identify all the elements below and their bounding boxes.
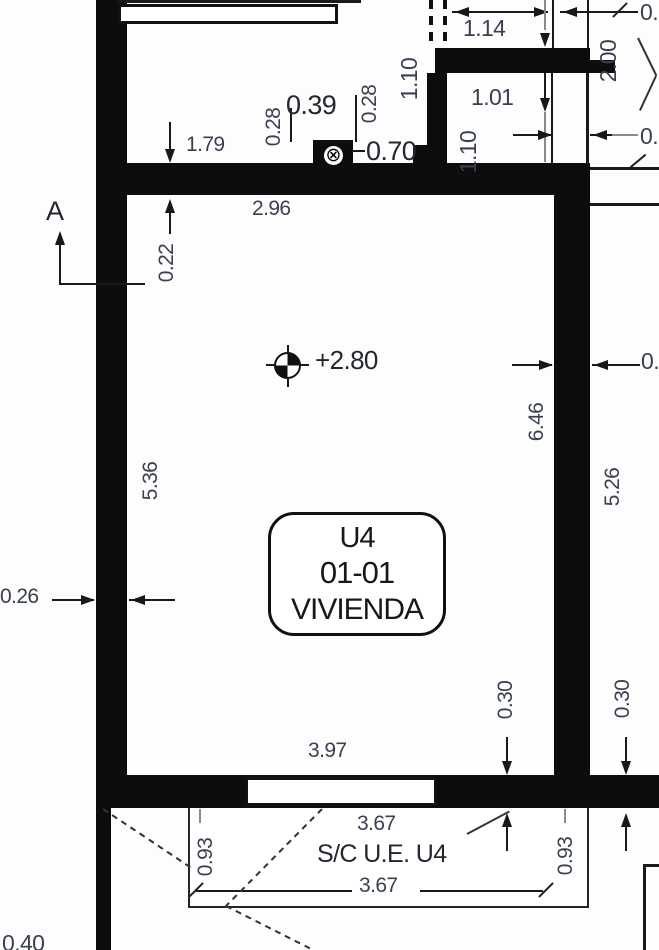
dim-arrow-right (539, 360, 556, 370)
wall-top-right (435, 48, 590, 73)
dim-6-46: 6.46 (526, 392, 550, 452)
section-cut-line (59, 283, 145, 285)
dim-cut-mid-right: 0. (640, 125, 658, 148)
dim-tick (506, 737, 508, 763)
dim-arrow-left (591, 360, 608, 370)
dim-tick (544, 73, 546, 99)
dim-arrow-left (128, 595, 145, 605)
dim-0-39: 0.39 (286, 92, 336, 119)
dim-1-10-b: 1.10 (457, 122, 481, 182)
dim-5-26: 5.26 (602, 457, 626, 517)
dim-arrow-right (81, 595, 98, 605)
dim-line (196, 890, 352, 892)
corridor-line-lower (590, 203, 659, 206)
dim-arrow-left (590, 130, 607, 140)
dim-tick (564, 809, 566, 823)
dim-3-97: 3.97 (308, 740, 346, 761)
dim-0-30-b: 0.30 (612, 669, 636, 729)
top-window-sill-line (118, 0, 361, 3)
adjacent-balcony-left-edge (643, 864, 646, 950)
dim-slash-tick (612, 2, 628, 18)
dim-0-28-a: 0.28 (263, 97, 287, 157)
wall-right (554, 163, 590, 776)
section-marker-label: A (46, 198, 63, 225)
dim-1-01: 1.01 (471, 86, 513, 109)
dim-3-67-top: 3.67 (357, 813, 395, 834)
dim-tick (169, 122, 171, 152)
dim-arrow-right (534, 7, 551, 17)
dim-leader-line (637, 38, 657, 77)
dim-cut-top-right: 0. (640, 1, 658, 24)
floor-plan-drawing: ⊗ A +2.80 U4 01-01 VIVIENDA (0, 0, 659, 950)
dim-0-22: 0.22 (156, 233, 180, 293)
door-opening-right-jamb (586, 73, 589, 164)
level-tick-left (266, 364, 274, 366)
dim-line (352, 150, 365, 152)
dim-0-30-a: 0.30 (495, 670, 519, 730)
level-tick-right (301, 364, 309, 366)
room-label-box: U4 01-01 VIVIENDA (268, 512, 446, 636)
dim-2-00: 2.00 (597, 31, 621, 91)
shaft-line-right-upper (587, 0, 589, 48)
dim-arrow-down (165, 149, 175, 166)
dim-leader-line (639, 76, 657, 111)
dim-extension-line (612, 134, 638, 136)
dim-arrow-left (560, 7, 577, 17)
dim-arrow-down (540, 33, 550, 50)
dim-line (420, 890, 543, 892)
level-value: +2.80 (315, 347, 378, 373)
dim-0-93-b: 0.93 (555, 826, 579, 886)
door-opening-left-jamb (551, 73, 553, 164)
dim-5-36: 5.36 (140, 451, 164, 511)
dim-tick (169, 208, 171, 234)
overhead-projection-dashed-line-1 (429, 0, 433, 46)
dim-3-67-bottom: 3.67 (359, 875, 397, 896)
room-use: VIVIENDA (291, 592, 423, 627)
dim-arrow-down (502, 761, 512, 778)
dim-1-79: 1.79 (186, 134, 224, 155)
dim-arrow-down (621, 761, 631, 778)
dim-0-70: 0.70 (366, 138, 416, 165)
dim-0-28-b: 0.28 (359, 74, 383, 134)
void-diagonal-line (102, 808, 190, 868)
dim-0-93-a: 0.93 (195, 827, 219, 887)
room-code: 01-01 (320, 555, 394, 592)
room-unit: U4 (339, 521, 374, 555)
wall-jog-pilaster (413, 145, 447, 167)
level-tick-bottom (287, 379, 289, 387)
dim-tick (506, 823, 508, 851)
dim-tick (625, 737, 627, 763)
column-axis-icon: ⊗ (324, 146, 343, 165)
dim-tick (625, 823, 627, 851)
dim-extension-line (544, 0, 546, 30)
dim-0-26: 0.26 (0, 586, 38, 607)
dim-1-14: 1.14 (463, 17, 505, 40)
dim-cut-wall-right: 0. (641, 350, 659, 373)
dim-1-10-a: 1.10 (398, 49, 422, 109)
window-bottom (245, 777, 437, 806)
dim-tick (199, 809, 201, 823)
wall-left-lower (96, 806, 111, 950)
corridor-line-upper (590, 167, 659, 170)
shaft-line-left-upper (552, 0, 554, 48)
level-marker-icon (274, 352, 301, 379)
level-tick-top (287, 345, 289, 353)
window-top (118, 4, 338, 24)
wall-left (96, 0, 127, 776)
dim-tick (355, 95, 357, 142)
dim-2-96: 2.96 (252, 198, 290, 219)
overhead-projection-dashed-line-2 (443, 0, 447, 46)
section-arrow-shaft (59, 240, 61, 284)
area-name-label: S/C U.E. U4 (317, 842, 447, 867)
dim-arrow-right (538, 130, 555, 140)
dim-cut-bottom-left: 0.40 (2, 932, 44, 950)
void-diagonal-line (226, 905, 314, 950)
